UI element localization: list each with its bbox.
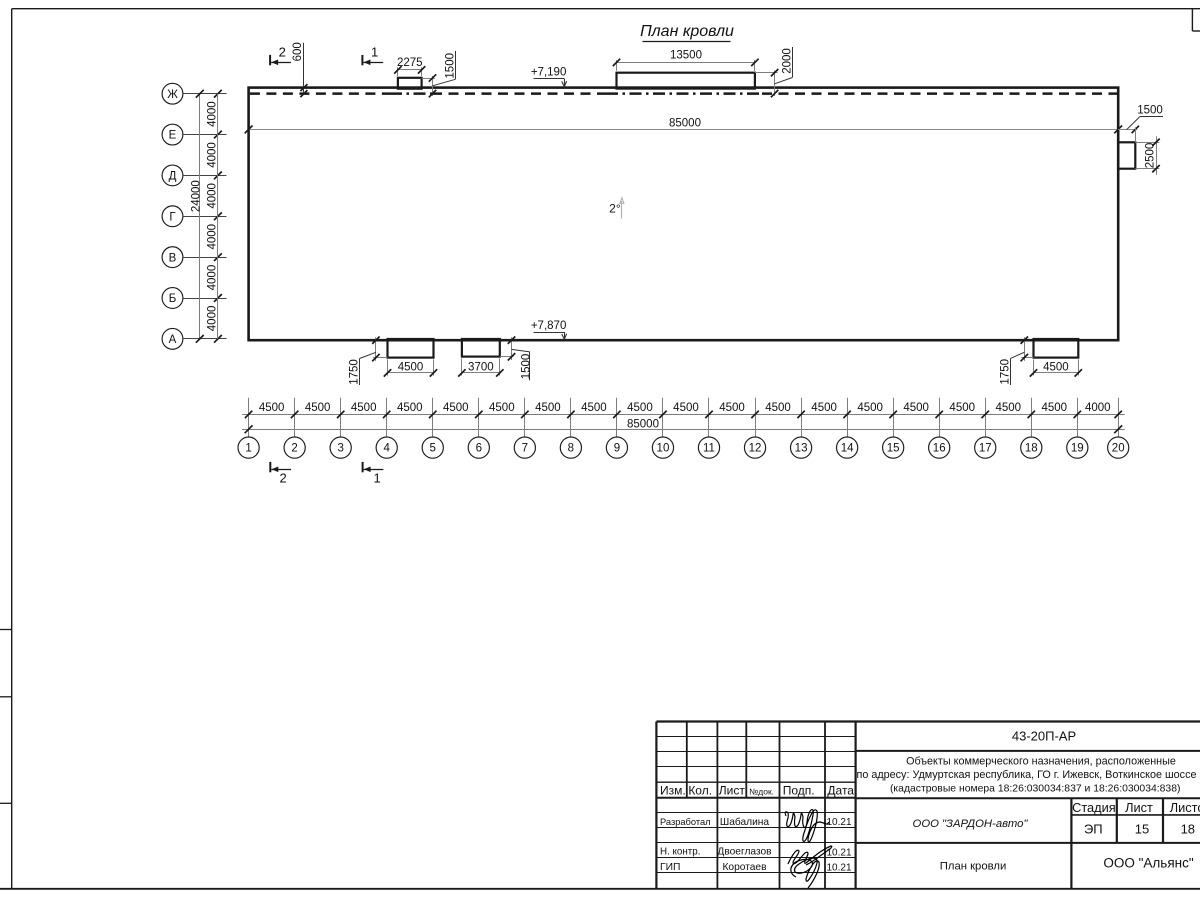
svg-text:7: 7 <box>522 443 528 455</box>
svg-text:1: 1 <box>245 443 251 455</box>
svg-text:85000: 85000 <box>627 418 659 430</box>
svg-text:2500: 2500 <box>1145 143 1157 169</box>
svg-text:3700: 3700 <box>468 361 494 373</box>
svg-text:3: 3 <box>337 443 343 455</box>
svg-text:Е: Е <box>169 130 177 142</box>
svg-text:Объекты коммерческого назначен: Объекты коммерческого назначения, распол… <box>906 755 1176 767</box>
svg-text:4500: 4500 <box>719 402 745 414</box>
svg-text:ООО "Альянс": ООО "Альянс" <box>1103 856 1193 871</box>
svg-text:4500: 4500 <box>903 402 929 414</box>
svg-text:Кол.: Кол. <box>688 784 712 798</box>
svg-text:1: 1 <box>371 44 378 59</box>
svg-text:1500: 1500 <box>1137 105 1163 117</box>
svg-text:Стадия: Стадия <box>1072 800 1116 815</box>
svg-text:2000: 2000 <box>782 48 794 74</box>
svg-text:4500: 4500 <box>398 361 424 373</box>
svg-text:4500: 4500 <box>443 402 469 414</box>
svg-text:4000: 4000 <box>206 265 218 291</box>
svg-text:План кровли: План кровли <box>940 861 1007 873</box>
svg-text:№док.: №док. <box>749 787 774 797</box>
svg-text:14: 14 <box>841 443 854 455</box>
svg-text:20: 20 <box>1112 443 1125 455</box>
svg-text:4500: 4500 <box>857 402 883 414</box>
svg-text:4500: 4500 <box>1043 361 1069 373</box>
svg-text:600: 600 <box>292 42 304 61</box>
svg-text:4000: 4000 <box>206 306 218 332</box>
svg-text:4000: 4000 <box>206 224 218 250</box>
svg-text:12: 12 <box>749 443 762 455</box>
svg-text:+7,870: +7,870 <box>531 320 567 332</box>
svg-text:по адресу: Удмуртская республи: по адресу: Удмуртская республика, ГО г. … <box>856 769 1196 781</box>
svg-text:2: 2 <box>291 443 297 455</box>
svg-text:8: 8 <box>568 443 574 455</box>
svg-text:Подп.: Подп. <box>783 784 815 798</box>
svg-text:1750: 1750 <box>349 359 361 385</box>
svg-text:6: 6 <box>476 443 482 455</box>
svg-text:43-20П-АР: 43-20П-АР <box>1012 728 1076 743</box>
svg-text:15: 15 <box>887 443 900 455</box>
svg-text:А: А <box>169 334 177 346</box>
svg-text:13500: 13500 <box>670 50 702 62</box>
svg-text:1750: 1750 <box>1000 359 1012 385</box>
svg-text:1500: 1500 <box>520 354 532 380</box>
svg-text:4500: 4500 <box>949 402 975 414</box>
svg-text:4500: 4500 <box>627 402 653 414</box>
svg-text:Лист: Лист <box>719 784 746 798</box>
svg-text:15: 15 <box>1135 822 1149 837</box>
svg-text:4500: 4500 <box>581 402 607 414</box>
svg-text:4500: 4500 <box>673 402 699 414</box>
svg-text:13: 13 <box>795 443 808 455</box>
svg-text:85000: 85000 <box>669 117 701 129</box>
svg-text:Б: Б <box>169 293 177 305</box>
svg-text:4500: 4500 <box>489 402 515 414</box>
svg-text:(кадастровые номера 18:26:0300: (кадастровые номера 18:26:030034:837 и 1… <box>890 783 1181 794</box>
svg-text:Изм.: Изм. <box>660 784 686 798</box>
svg-text:В: В <box>169 252 177 264</box>
svg-text:16: 16 <box>933 443 946 455</box>
svg-text:Г: Г <box>169 211 176 223</box>
svg-text:Д: Д <box>169 171 177 183</box>
svg-text:Дата: Дата <box>827 784 854 798</box>
svg-text:4500: 4500 <box>811 402 837 414</box>
svg-text:4500: 4500 <box>535 402 561 414</box>
svg-text:1500: 1500 <box>445 53 457 79</box>
svg-text:+7,190: +7,190 <box>531 67 567 79</box>
svg-text:1: 1 <box>373 470 380 485</box>
svg-text:4000: 4000 <box>206 142 218 168</box>
svg-text:9: 9 <box>614 443 620 455</box>
svg-text:План кровли: План кровли <box>640 23 734 40</box>
svg-text:2: 2 <box>279 470 286 485</box>
svg-text:4500: 4500 <box>305 402 331 414</box>
svg-text:10.21: 10.21 <box>826 863 851 874</box>
svg-text:Лист: Лист <box>1125 800 1153 815</box>
svg-text:Двоеглазов: Двоеглазов <box>717 847 771 858</box>
svg-text:4: 4 <box>384 443 391 455</box>
svg-text:4500: 4500 <box>995 402 1021 414</box>
svg-text:5: 5 <box>430 443 436 455</box>
svg-text:Шабалина: Шабалина <box>720 816 770 828</box>
svg-text:Коротаев: Коротаев <box>722 862 766 873</box>
svg-text:2°: 2° <box>609 202 621 216</box>
svg-text:4000: 4000 <box>1085 402 1111 414</box>
svg-text:10: 10 <box>657 443 670 455</box>
svg-text:4000: 4000 <box>206 183 218 209</box>
svg-text:11: 11 <box>703 443 715 455</box>
svg-text:ООО "ЗАРДОН-авто": ООО "ЗАРДОН-авто" <box>913 818 1029 830</box>
svg-text:4000: 4000 <box>206 101 218 127</box>
svg-text:17: 17 <box>979 443 992 455</box>
svg-text:19: 19 <box>1071 443 1084 455</box>
svg-text:Разработал: Разработал <box>660 817 711 827</box>
svg-text:4500: 4500 <box>1042 402 1068 414</box>
svg-text:4500: 4500 <box>259 402 285 414</box>
svg-text:Листов: Листов <box>1170 800 1200 815</box>
svg-text:24000: 24000 <box>190 180 202 212</box>
svg-text:18: 18 <box>1181 822 1195 837</box>
svg-text:2275: 2275 <box>397 57 423 69</box>
svg-text:4500: 4500 <box>397 402 423 414</box>
svg-text:18: 18 <box>1025 443 1038 455</box>
svg-text:Н. контр.: Н. контр. <box>660 847 700 858</box>
svg-text:4500: 4500 <box>351 402 377 414</box>
svg-text:ГИП: ГИП <box>660 862 680 873</box>
svg-text:4500: 4500 <box>765 402 791 414</box>
svg-text:Ж: Ж <box>167 89 178 101</box>
svg-text:2: 2 <box>279 44 286 59</box>
svg-text:10.21: 10.21 <box>826 817 851 828</box>
svg-text:ЭП: ЭП <box>1084 822 1103 837</box>
